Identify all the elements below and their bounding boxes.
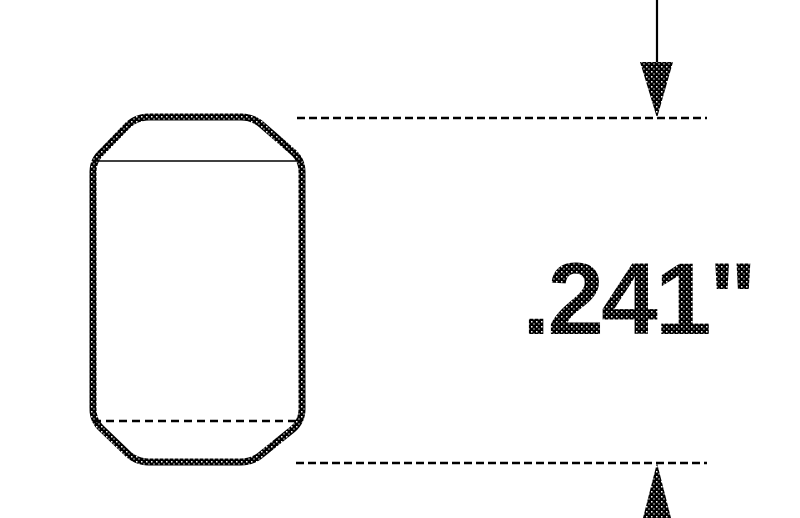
technical-drawing-canvas: .241": [0, 0, 800, 518]
dimension-value: .241": [522, 242, 754, 356]
dimension-drawing: .241": [0, 0, 800, 518]
part-outline: [93, 117, 302, 462]
